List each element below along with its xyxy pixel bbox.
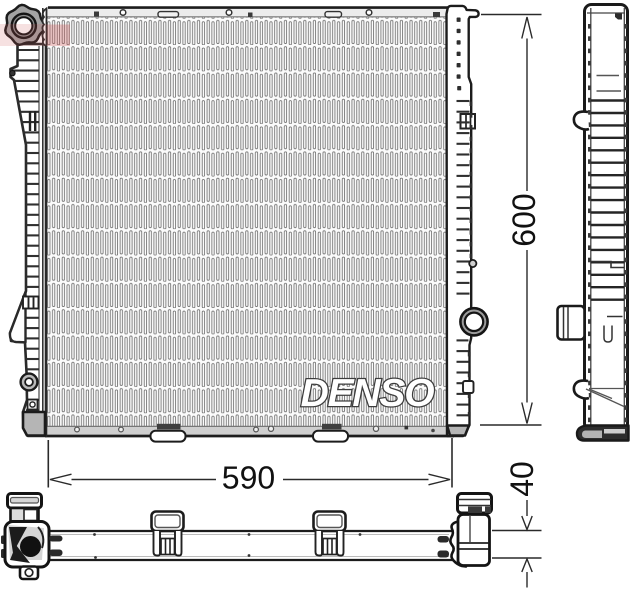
svg-text:DENSO: DENSO <box>301 372 435 415</box>
svg-text:600: 600 <box>506 193 542 246</box>
svg-text:590: 590 <box>222 459 275 495</box>
svg-text:40: 40 <box>504 461 540 497</box>
